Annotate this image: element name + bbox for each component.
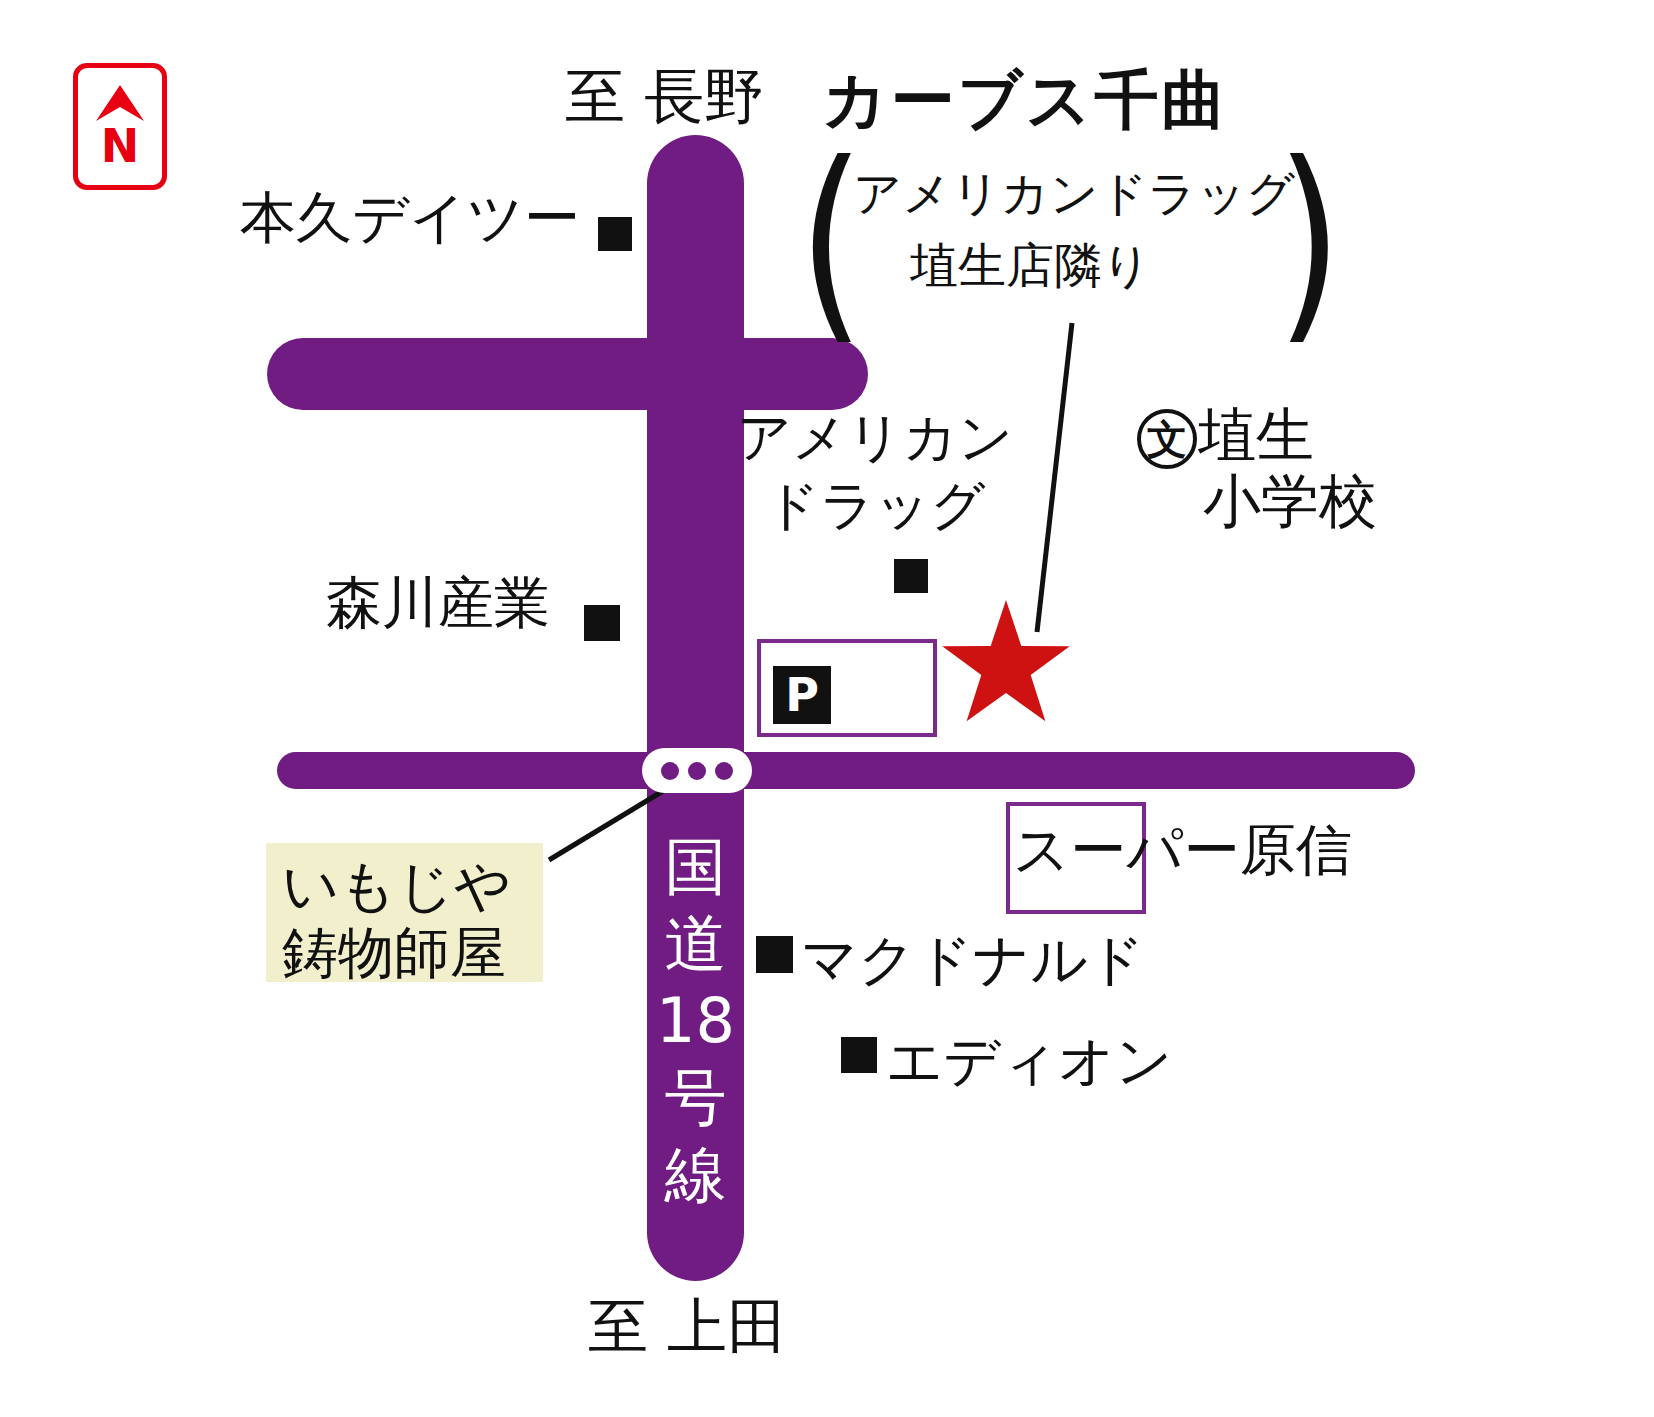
destination-north-label: 至 長野 (565, 62, 764, 131)
landmark-morikawa-label: 森川産業 (326, 571, 550, 635)
landmark-mcdonalds-label: マクドナルド (801, 928, 1145, 992)
landmark-school-label-line1: 埴生 (1198, 402, 1314, 469)
leader-line-signal-to-imojiya (549, 791, 663, 860)
landmark-edion-label: エディオン (886, 1029, 1173, 1093)
landmark-american-drug-marker (894, 559, 928, 593)
landmark-school-label-line2: 小学校 (1203, 468, 1377, 535)
road-horizontal-upper (267, 338, 868, 410)
route18-label: 国 道 18 号 線 (647, 828, 744, 1213)
landmark-honkyu-marker (598, 217, 632, 251)
parking-icon: P (773, 666, 831, 724)
landmark-imojiya-label: いもじや 鋳物師屋 (266, 843, 543, 982)
signal-dot (715, 762, 733, 780)
parking-lot-box: P (757, 639, 937, 737)
signal-dot (688, 762, 706, 780)
landmark-american-drug-label: アメリカン ドラッグ (710, 404, 1040, 539)
north-letter: N (101, 123, 140, 169)
subtitle-line1: アメリカンドラッグ (853, 166, 1295, 221)
traffic-signal-icon (642, 748, 752, 793)
destination-south-label: 至 上田 (588, 1292, 787, 1361)
landmark-edion-marker (841, 1037, 877, 1073)
map-title: カーブス千曲 (822, 64, 1229, 138)
access-map: N 至 長野 カーブス千曲 ( アメリカンドラッグ 埴生店隣り ) 本久デイツー… (0, 0, 1654, 1417)
north-compass: N (73, 63, 167, 190)
landmark-morikawa-marker (584, 605, 620, 641)
landmark-honkyu-label: 本久デイツー (240, 186, 580, 250)
subtitle-line2: 埴生店隣り (910, 238, 1151, 293)
landmark-mcdonalds-marker (756, 936, 793, 973)
road-horizontal-main (277, 752, 1415, 789)
signal-dot (661, 762, 679, 780)
location-star-icon (942, 600, 1069, 721)
school-icon: 文 (1137, 409, 1197, 469)
close-paren: ) (1276, 158, 1342, 323)
landmark-harashin-label: スーパー原信 (1013, 818, 1352, 882)
north-arrow-icon (96, 85, 144, 121)
leader-line-title-to-star (1037, 323, 1072, 632)
